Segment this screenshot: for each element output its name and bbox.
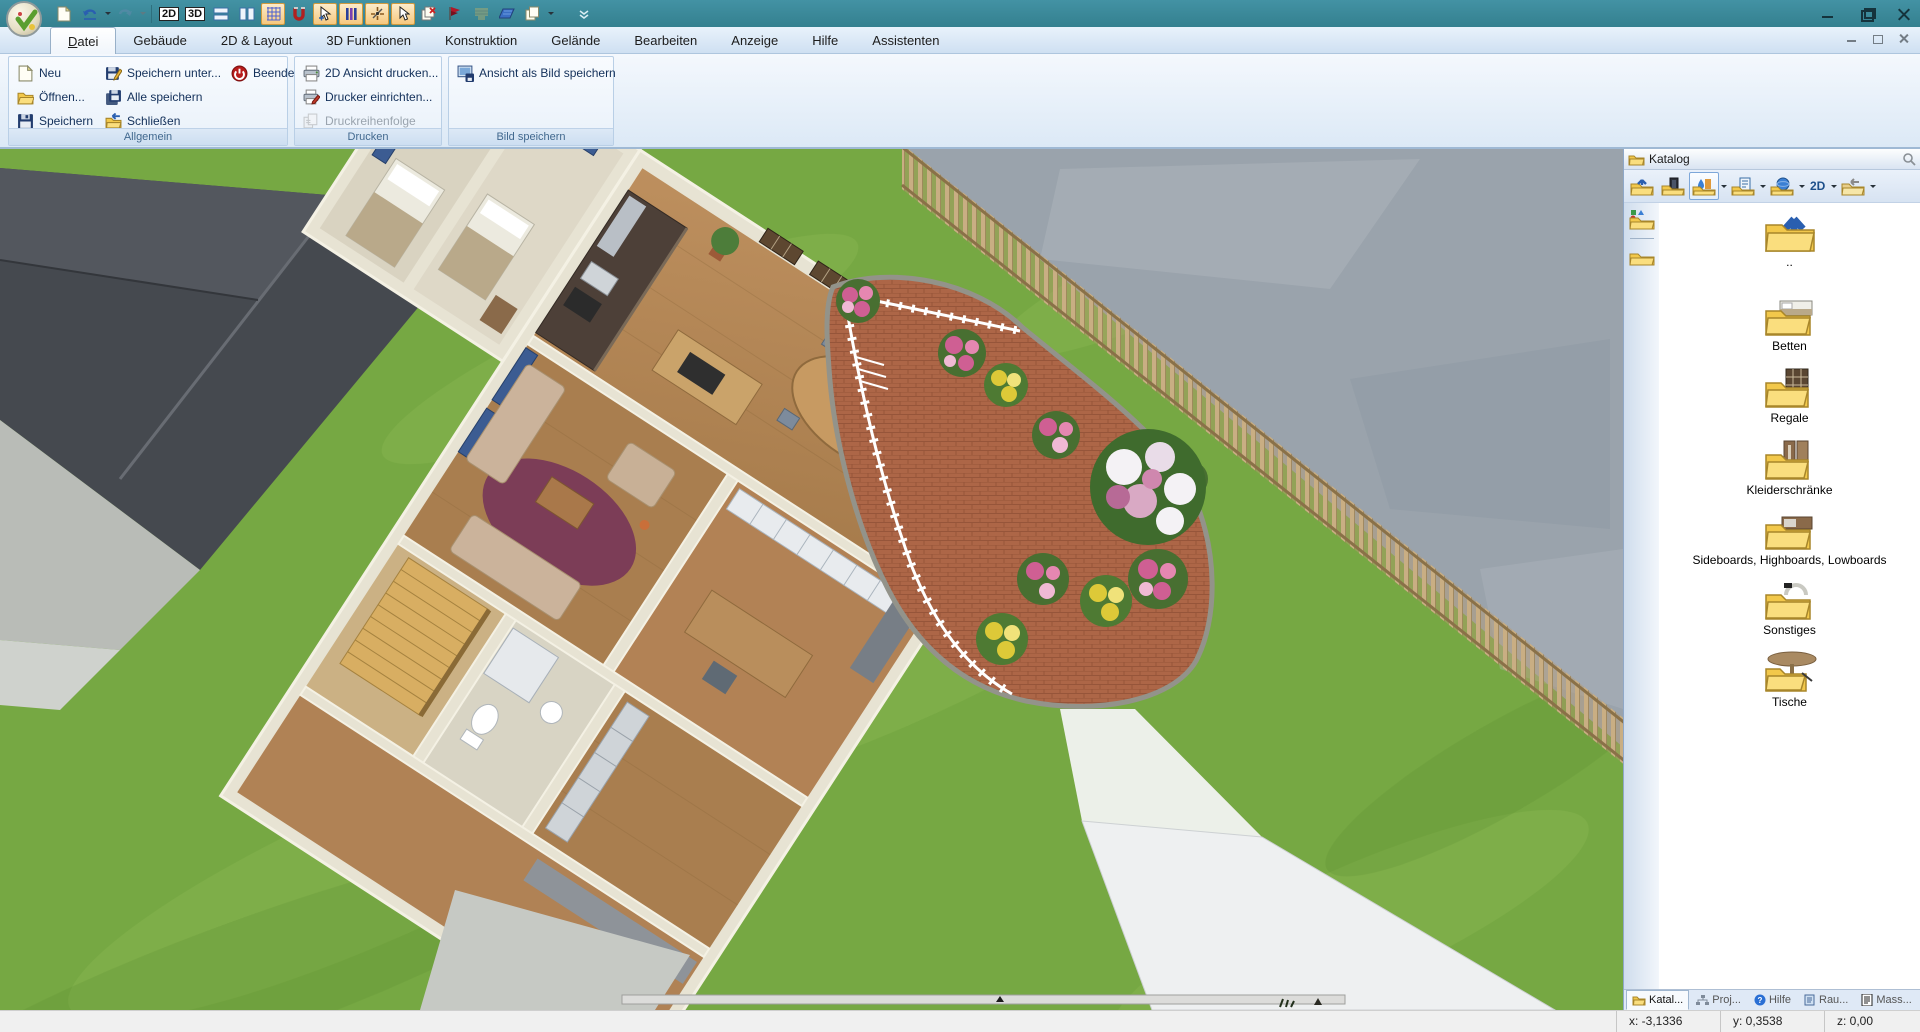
catalog-2d-symbols-dropdown-icon[interactable] (1760, 185, 1766, 191)
catalog-rail (1624, 203, 1659, 989)
menu-item-2d-ansicht-drucken[interactable]: 2D Ansicht drucken... (303, 62, 438, 84)
panel-tab-raumliste[interactable]: Rau... (1798, 990, 1854, 1010)
new-document-icon[interactable] (52, 3, 76, 25)
catalog-item-sideboards[interactable]: Sideboards, Highboards, Lowboards (1680, 511, 1900, 567)
tab-datei[interactable]: Datei (50, 27, 116, 54)
pin-icon[interactable] (1902, 152, 1916, 166)
catalog-back-folder-button[interactable] (1838, 172, 1868, 200)
catalog-item-sonstiges[interactable]: Sonstiges (1680, 581, 1900, 637)
app-logo-icon[interactable] (6, 1, 42, 37)
group-label-drucken: Drucken (295, 128, 441, 145)
catalog-3d-objects-dropdown-icon[interactable] (1799, 185, 1805, 191)
catalog-item-regale[interactable]: Regale (1680, 367, 1900, 425)
ribbon-tab-row: Datei Gebäude 2D & Layout 3D Funktionen … (0, 27, 1920, 54)
catalog-groups-folder-button[interactable] (1629, 247, 1655, 266)
delete-copy-icon[interactable] (417, 3, 441, 25)
catalog-3d-objects-button[interactable] (1767, 172, 1797, 200)
group-label-bild-speichern: Bild speichern (449, 128, 613, 145)
file-menu-panel: Neu Öffnen... Speichern Speichern unter.… (0, 54, 1920, 149)
panel-tab-projekt[interactable]: Proj... (1690, 990, 1747, 1010)
mdi-minimize-button[interactable] (1846, 33, 1858, 44)
group-allgemein: Neu Öffnen... Speichern Speichern unter.… (8, 56, 288, 146)
group-drucken: 2D Ansicht drucken... Drucker einrichten… (294, 56, 442, 146)
catalog-2d-symbols-button[interactable] (1728, 172, 1758, 200)
menu-item-ansicht-als-bild[interactable]: Ansicht als Bild speichern (457, 62, 616, 84)
main-area: Katalog (0, 149, 1920, 1010)
menu-item-neu[interactable]: Neu (17, 62, 61, 84)
3d-viewport[interactable] (0, 149, 1623, 1010)
duplicate-icon[interactable] (521, 3, 545, 25)
menu-item-alle-speichern[interactable]: Alle speichern (105, 86, 202, 108)
duplicate-dropdown-icon[interactable] (548, 12, 554, 18)
catalog-item-up[interactable]: .. (1680, 211, 1900, 269)
toolbar-more-icon[interactable] (572, 3, 596, 25)
catalog-folder-icon (1628, 153, 1645, 166)
select-add-icon[interactable] (313, 3, 337, 25)
status-x-coordinate: x: -3,1336 (1616, 1011, 1720, 1032)
window-restore-button[interactable] (1858, 7, 1874, 21)
window-close-button[interactable] (1896, 7, 1912, 21)
status-bar: x: -3,1336 y: 0,3538 z: 0,00 (0, 1010, 1920, 1032)
catalog-item-betten[interactable]: Betten (1680, 297, 1900, 353)
tab-konstruktion[interactable]: Konstruktion (428, 27, 534, 54)
catalog-materials-button[interactable] (1689, 172, 1719, 200)
menu-item-drucker-einrichten[interactable]: Drucker einrichten... (303, 86, 432, 108)
mdi-close-button[interactable] (1898, 33, 1910, 44)
catalog-item-tische[interactable]: Tische (1680, 651, 1900, 709)
catalog-up-folder-button[interactable] (1627, 172, 1657, 200)
flag-icon[interactable] (443, 3, 467, 25)
quick-access-toolbar: 2D 3D (52, 2, 596, 25)
group-bild-speichern: Ansicht als Bild speichern Bild speicher… (448, 56, 614, 146)
snap-point-icon[interactable] (365, 3, 389, 25)
status-z-coordinate: z: 0,00 (1824, 1011, 1914, 1032)
ribbon-tabs: Datei Gebäude 2D & Layout 3D Funktionen … (50, 27, 956, 54)
catalog-bottom-tabs: Katal... Proj... ? Hilfe Rau... Mass... (1624, 989, 1920, 1010)
tab-hilfe[interactable]: Hilfe (795, 27, 855, 54)
guides-icon[interactable] (339, 3, 363, 25)
tab-bearbeiten[interactable]: Bearbeiten (617, 27, 714, 54)
catalog-panel: Katalog (1623, 149, 1920, 1010)
window-controls (1820, 0, 1912, 27)
title-bar: 2D 3D (0, 0, 1920, 27)
catalog-list: .. Betten Regale Kleiderschränke (1659, 203, 1920, 989)
panel-tab-massen[interactable]: Mass... (1855, 990, 1917, 1010)
catalog-header: Katalog (1624, 149, 1920, 170)
grid-icon[interactable] (261, 3, 285, 25)
split-vertical-icon[interactable] (235, 3, 259, 25)
tab-gelaende[interactable]: Gelände (534, 27, 617, 54)
catalog-title: Katalog (1649, 152, 1898, 166)
tab-gebaeude[interactable]: Gebäude (116, 27, 204, 54)
redo-dropdown-icon[interactable] (140, 12, 146, 18)
panel-tab-katalog[interactable]: Katal... (1626, 990, 1689, 1010)
window-minimize-button[interactable] (1820, 7, 1836, 21)
tab-2d-layout[interactable]: 2D & Layout (204, 27, 310, 54)
undo-icon[interactable] (78, 3, 102, 25)
mdi-restore-button[interactable] (1872, 33, 1884, 44)
rail-separator (1630, 238, 1654, 239)
select-arrow-icon[interactable] (391, 3, 415, 25)
split-horizontal-icon[interactable] (209, 3, 233, 25)
status-y-coordinate: y: 0,3538 (1720, 1011, 1824, 1032)
texture-icon[interactable] (469, 3, 493, 25)
menu-item-speichern-unter[interactable]: Speichern unter... (105, 62, 221, 84)
svg-text:?: ? (1758, 996, 1763, 1005)
tab-3d-funktionen[interactable]: 3D Funktionen (309, 27, 428, 54)
surface-icon[interactable] (495, 3, 519, 25)
catalog-doors-button[interactable] (1658, 172, 1688, 200)
view-3d-button[interactable]: 3D (183, 3, 207, 25)
menu-item-oeffnen[interactable]: Öffnen... (17, 86, 85, 108)
tab-assistenten[interactable]: Assistenten (855, 27, 956, 54)
application-window: 2D 3D (0, 0, 1920, 1032)
catalog-2d-view-button[interactable]: 2D (1806, 172, 1829, 200)
panel-tab-hilfe[interactable]: ? Hilfe (1748, 990, 1797, 1010)
undo-dropdown-icon[interactable] (105, 12, 111, 18)
catalog-2d-view-dropdown-icon[interactable] (1831, 185, 1837, 191)
menu-item-beenden[interactable]: Beenden (231, 62, 301, 84)
catalog-back-folder-dropdown-icon[interactable] (1870, 185, 1876, 191)
catalog-item-kleiderschraenke[interactable]: Kleiderschränke (1680, 439, 1900, 497)
catalog-toolbar: 2D (1624, 170, 1920, 203)
mdi-window-controls (1846, 33, 1910, 44)
toolbar-separator (151, 5, 152, 23)
catalog-materials-dropdown-icon[interactable] (1721, 185, 1727, 191)
snap-magnet-icon[interactable] (287, 3, 311, 25)
tab-anzeige[interactable]: Anzeige (714, 27, 795, 54)
redo-icon[interactable] (113, 3, 137, 25)
group-label-allgemein: Allgemein (9, 128, 287, 145)
view-2d-button[interactable]: 2D (157, 3, 181, 25)
catalog-objects-folder-button[interactable] (1629, 209, 1655, 230)
